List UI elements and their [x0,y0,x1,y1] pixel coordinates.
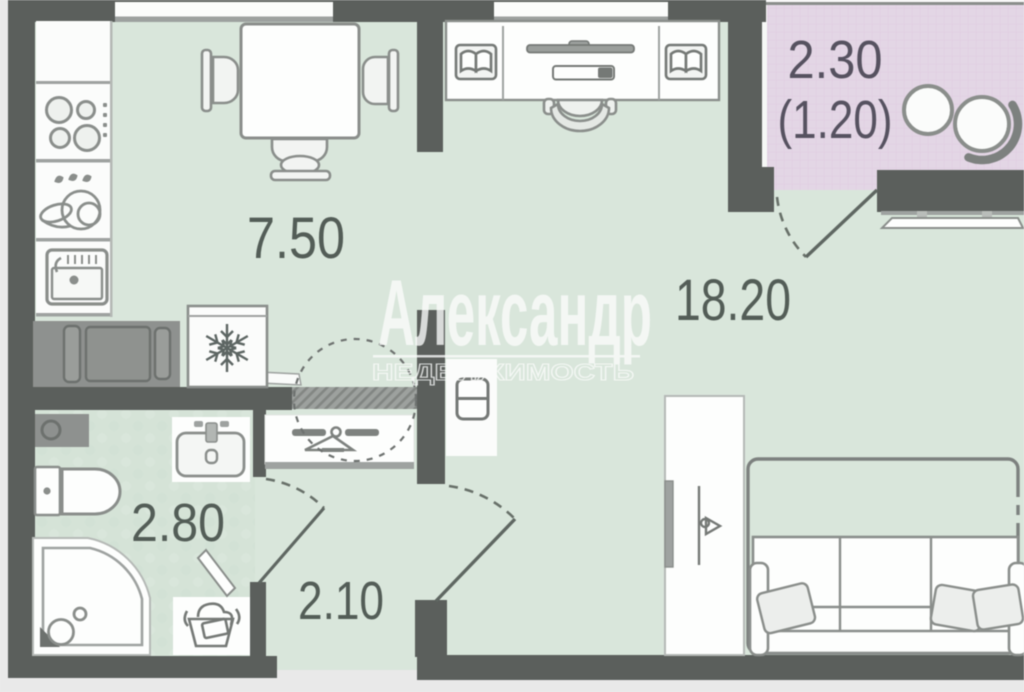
svg-text:(1.20): (1.20) [778,90,893,150]
svg-text:НЕДВИЖИМОСТЬ: НЕДВИЖИМОСТЬ [372,359,634,385]
svg-text:7.50: 7.50 [247,206,345,271]
svg-text:2.30: 2.30 [788,30,883,90]
svg-text:18.20: 18.20 [675,268,791,333]
svg-text:2.10: 2.10 [298,571,384,631]
svg-text:2.80: 2.80 [131,493,225,553]
svg-text:Александр: Александр [378,260,652,365]
